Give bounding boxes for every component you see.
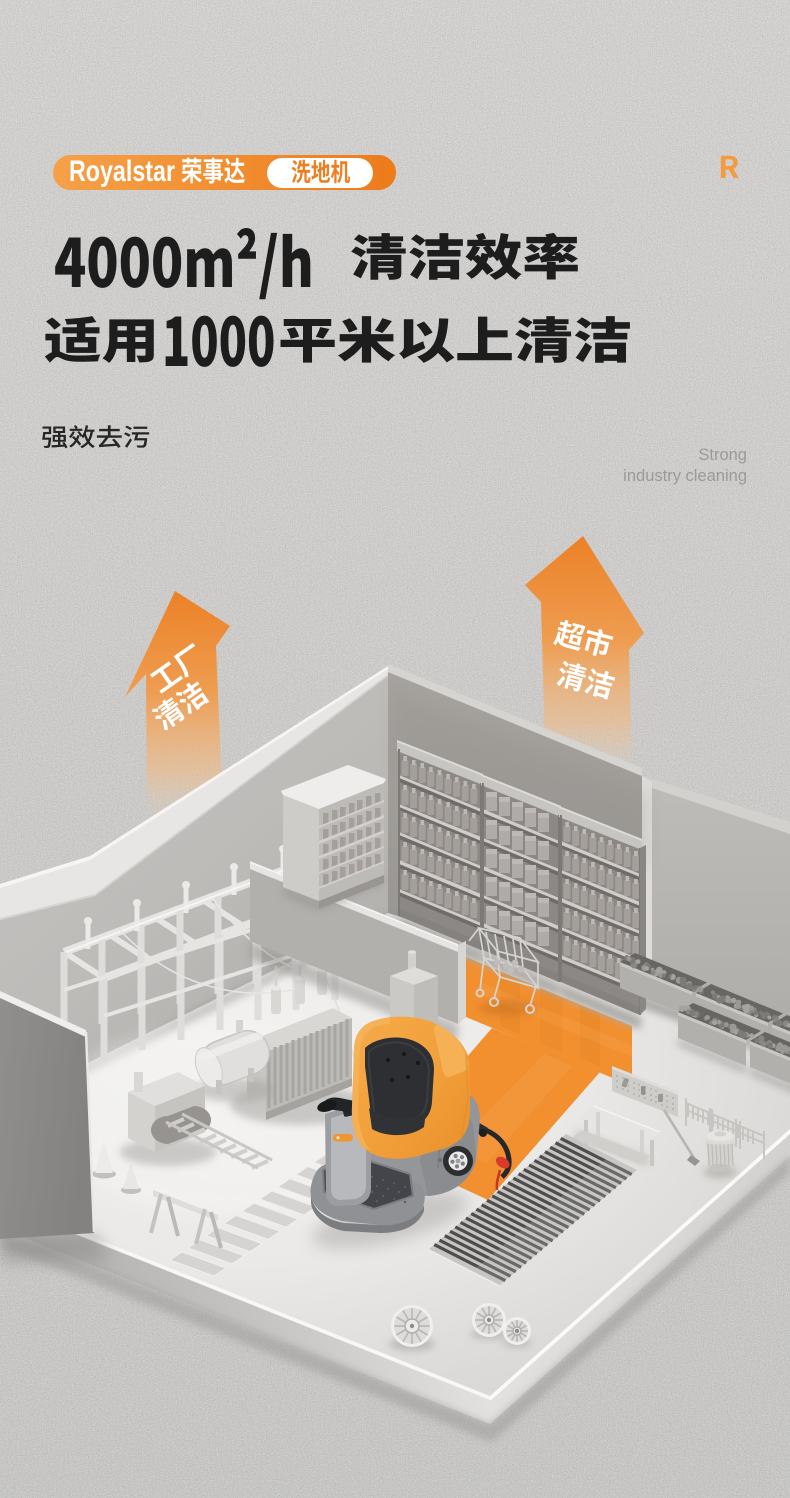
svg-text:Royalstar: Royalstar — [69, 155, 175, 188]
svg-text:Strong: Strong — [698, 446, 747, 464]
svg-text:industry cleaning: industry cleaning — [623, 467, 747, 485]
